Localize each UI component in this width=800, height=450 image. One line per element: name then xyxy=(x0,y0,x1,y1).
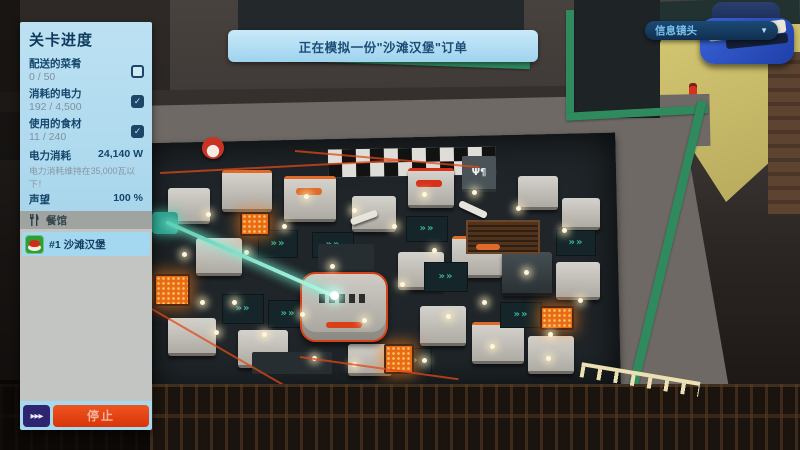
light-dot xyxy=(392,224,397,229)
conveyor-belt: »» xyxy=(500,302,542,328)
machine-label xyxy=(476,244,500,250)
light-dot xyxy=(578,298,583,303)
light-dot xyxy=(330,264,335,269)
machine-block xyxy=(408,168,454,208)
light-dot xyxy=(422,192,427,197)
objective-label: 配送的菜肴 xyxy=(29,58,82,71)
machine-block xyxy=(528,336,574,374)
chevron-down-icon: ▼ xyxy=(760,26,768,35)
light-dot xyxy=(214,330,219,335)
light-dot xyxy=(446,314,451,319)
reputation-row: 声望 100 % xyxy=(20,190,152,207)
objective-row-ingredients: 使用的食材 11 / 240 ✓ xyxy=(20,116,152,146)
crate-stack xyxy=(768,52,800,214)
serving-window-sign: Ψ¶ xyxy=(462,156,496,192)
light-dot xyxy=(490,344,495,349)
grill-glow xyxy=(240,212,270,236)
light-dot xyxy=(282,224,287,229)
restaurant-header: 餐馆 xyxy=(20,211,152,229)
light-dot xyxy=(432,248,437,253)
machine-block xyxy=(562,198,600,230)
light-dot xyxy=(482,300,487,305)
machine-block xyxy=(556,262,600,300)
conveyor-belt: »» xyxy=(406,216,448,242)
light-dot xyxy=(362,318,367,323)
light-dot xyxy=(524,270,529,275)
grill-glow xyxy=(540,306,574,330)
floor-pad xyxy=(318,244,374,270)
camera-mode-button[interactable]: 信息镜头 ▼ xyxy=(645,21,778,40)
light-dot xyxy=(182,252,187,257)
camera-mode-label: 信息镜头 xyxy=(655,23,760,38)
objectives-section: 关卡进度 配送的菜肴 0 / 50 消耗的电力 192 / 4,500 ✓ 使用… xyxy=(20,22,152,211)
objective-row-dishes: 配送的菜肴 0 / 50 xyxy=(20,56,152,86)
machine-label xyxy=(416,180,442,187)
objective-row-power: 消耗的电力 192 / 4,500 ✓ xyxy=(20,86,152,116)
stop-button[interactable]: 停止 xyxy=(53,405,149,427)
objective-checkbox xyxy=(131,65,144,78)
order-item-beach-burger[interactable]: #1 沙滩汉堡 xyxy=(22,232,150,256)
objective-value: 0 / 50 xyxy=(29,71,82,84)
conveyor-belt: »» xyxy=(556,230,596,256)
light-dot xyxy=(300,312,305,317)
restaurant-header-label: 餐馆 xyxy=(46,213,67,228)
machine-block xyxy=(284,176,336,222)
light-dot xyxy=(304,194,309,199)
objective-value: 192 / 4,500 xyxy=(29,101,82,114)
conveyor-belt: »» xyxy=(424,262,468,292)
rooftop-structure xyxy=(574,0,660,118)
reputation-value: 100 % xyxy=(113,192,143,207)
machine-block xyxy=(222,170,272,212)
assembler-machine xyxy=(300,272,388,342)
laser-endpoint xyxy=(330,291,339,300)
roof-trim xyxy=(566,10,574,114)
floor-pad xyxy=(252,352,332,374)
objective-value: 11 / 240 xyxy=(29,131,82,144)
light-dot xyxy=(472,190,477,195)
light-dot xyxy=(422,358,427,363)
light-dot xyxy=(562,228,567,233)
machine-block xyxy=(518,176,558,210)
light-dot xyxy=(200,300,205,305)
conveyor-belt: »» xyxy=(222,294,264,324)
power-usage-row: 电力消耗 24,140 W xyxy=(20,146,152,163)
panel-footer: ▶▶▶ 停止 xyxy=(20,401,152,430)
light-dot xyxy=(352,208,357,213)
round-sign xyxy=(202,137,224,159)
utensils-icon xyxy=(29,214,40,226)
game-screen: Ψ¶»»»»»»»»»»»»»»»»»» 正在模拟一份"沙滩汉堡"订单 信息镜头… xyxy=(0,0,800,450)
machine-block xyxy=(472,322,524,364)
light-dot xyxy=(400,282,405,287)
objective-checkbox: ✓ xyxy=(131,95,144,108)
fast-forward-icon: ▶▶▶ xyxy=(31,412,43,420)
burger-recipe-icon xyxy=(25,235,44,254)
objective-label: 消耗的电力 xyxy=(29,88,82,101)
power-usage-label: 电力消耗 xyxy=(29,148,71,163)
reputation-label: 声望 xyxy=(29,192,50,207)
simulation-banner: 正在模拟一份"沙滩汉堡"订单 xyxy=(228,30,538,62)
grill-glow xyxy=(154,274,190,306)
banner-text: 正在模拟一份"沙滩汉堡"订单 xyxy=(299,37,468,56)
machine-label xyxy=(296,188,322,195)
light-dot xyxy=(262,332,267,337)
light-dot xyxy=(548,332,553,337)
order-item-label: #1 沙滩汉堡 xyxy=(49,237,106,252)
light-dot xyxy=(232,300,237,305)
objective-label: 使用的食材 xyxy=(29,118,82,131)
light-dot xyxy=(206,212,211,217)
level-progress-panel: 关卡进度 配送的菜肴 0 / 50 消耗的电力 192 / 4,500 ✓ 使用… xyxy=(20,22,152,430)
objective-checkbox: ✓ xyxy=(131,125,144,138)
fast-forward-button[interactable]: ▶▶▶ xyxy=(23,405,50,427)
stop-button-label: 停止 xyxy=(87,407,115,424)
orders-list: #1 沙滩汉堡 xyxy=(20,229,152,401)
machine-block xyxy=(420,306,466,346)
power-usage-value: 24,140 W xyxy=(98,148,143,163)
light-dot xyxy=(516,206,521,211)
panel-title: 关卡进度 xyxy=(20,29,152,56)
light-dot xyxy=(546,356,551,361)
power-hint: 电力消耗维持在35,000瓦以下！ xyxy=(20,163,152,190)
